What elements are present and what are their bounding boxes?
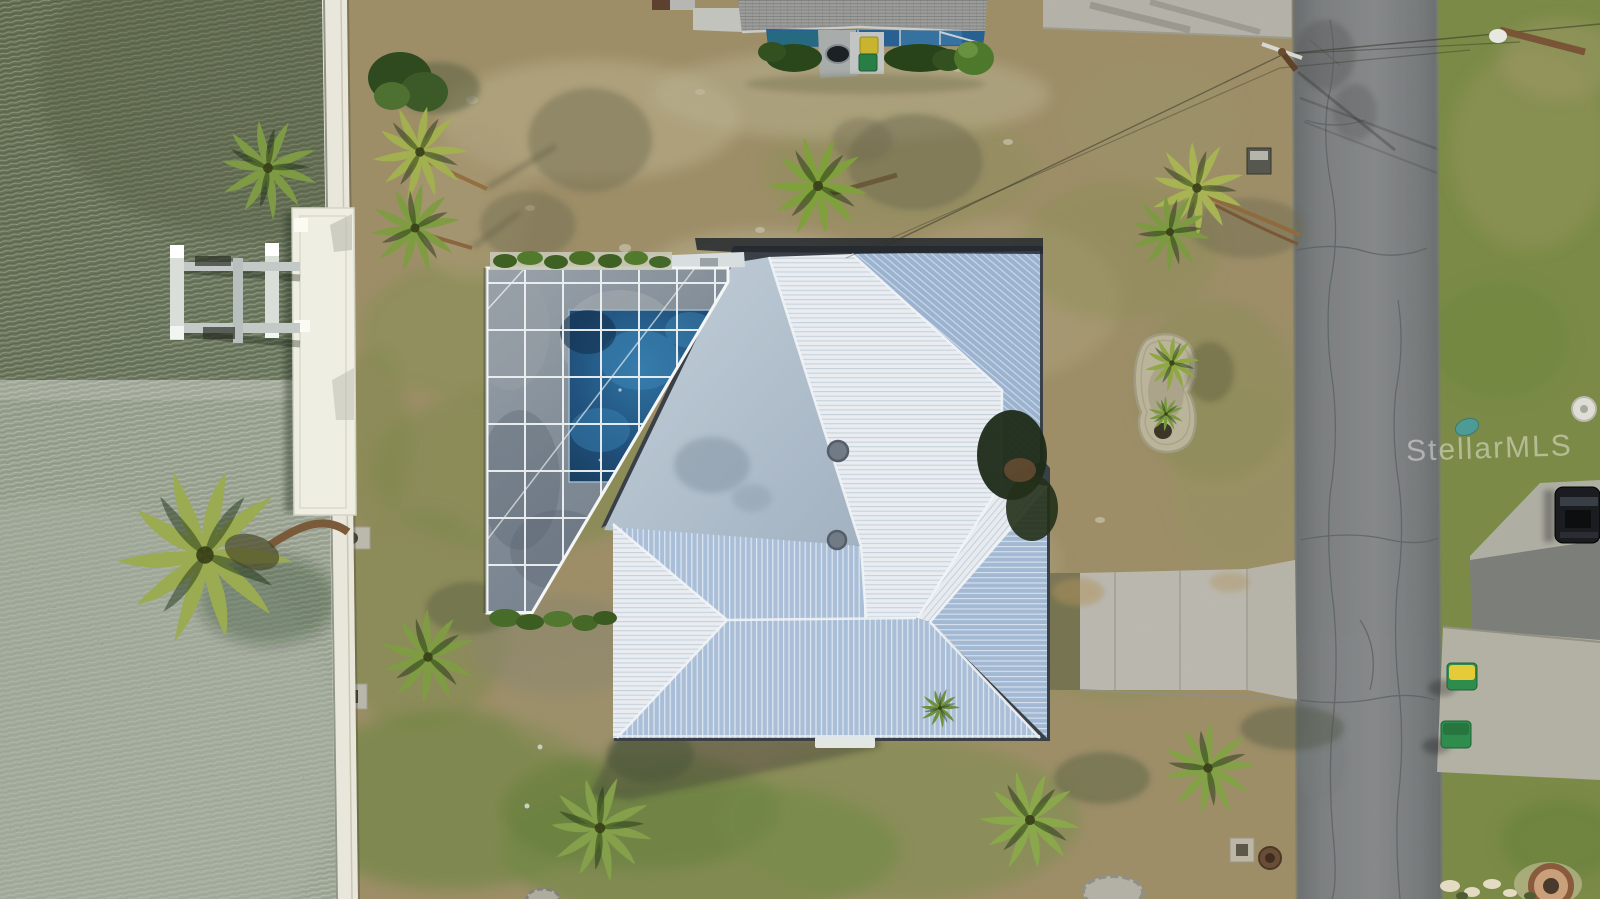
back-step <box>815 737 875 748</box>
planter-shrubs <box>490 251 672 270</box>
aerial-photo: StellarMLS <box>0 0 1600 899</box>
roof-vent <box>828 441 848 461</box>
parked-suv <box>1555 487 1600 543</box>
boat-dock <box>285 208 356 515</box>
roof-vent <box>828 531 846 549</box>
stellar-mls-watermark: StellarMLS <box>1405 429 1573 469</box>
lift-post <box>170 245 184 340</box>
roof-top-shadow <box>695 238 1043 254</box>
dock-cleat <box>294 218 308 232</box>
